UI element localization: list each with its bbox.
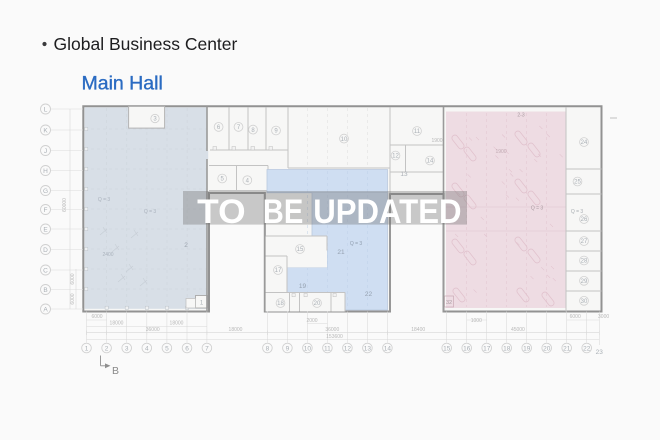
svg-text:B: B: [43, 287, 47, 294]
svg-text:D: D: [43, 247, 48, 254]
svg-text:Q = 3: Q = 3: [98, 197, 111, 203]
svg-text:28: 28: [581, 259, 588, 265]
svg-text:20: 20: [314, 301, 321, 307]
svg-text:18000: 18000: [229, 327, 243, 333]
svg-text:1000: 1000: [471, 318, 482, 324]
svg-text:C: C: [43, 267, 48, 274]
svg-text:22: 22: [365, 291, 373, 298]
svg-text:10: 10: [341, 137, 348, 143]
svg-text:11: 11: [324, 345, 331, 352]
svg-text:27: 27: [581, 239, 588, 245]
svg-text:K: K: [43, 127, 48, 134]
svg-text:15: 15: [443, 345, 451, 352]
svg-text:12: 12: [392, 154, 399, 160]
svg-text:24: 24: [581, 140, 588, 146]
svg-text:Global Business Center: Global Business Center: [54, 34, 238, 54]
svg-text:B: B: [112, 365, 119, 377]
svg-text:1900: 1900: [495, 149, 506, 155]
svg-text:2: 2: [105, 345, 109, 352]
svg-text:1900: 1900: [431, 138, 442, 144]
svg-text:BE: BE: [263, 193, 304, 231]
svg-text:18: 18: [277, 301, 284, 307]
svg-text:9: 9: [286, 345, 290, 352]
svg-text:36000: 36000: [325, 327, 339, 333]
svg-text:17: 17: [483, 345, 491, 352]
svg-text:1: 1: [85, 345, 89, 352]
svg-text:3000: 3000: [598, 314, 609, 320]
svg-text:30: 30: [581, 299, 588, 305]
svg-text:16: 16: [463, 345, 471, 352]
svg-text:23: 23: [596, 349, 604, 356]
svg-text:2000: 2000: [306, 318, 317, 324]
svg-text:Q = 3: Q = 3: [571, 209, 584, 215]
svg-text:13: 13: [364, 345, 372, 352]
svg-text:F: F: [44, 207, 48, 214]
svg-text:8: 8: [266, 345, 270, 352]
svg-text:A: A: [43, 306, 48, 313]
svg-text:Q = 3: Q = 3: [531, 206, 544, 212]
svg-text:UPDATED: UPDATED: [313, 193, 461, 231]
svg-text:10: 10: [304, 345, 312, 352]
svg-text:2: 2: [184, 242, 188, 249]
svg-text:H: H: [43, 168, 48, 175]
svg-text:18: 18: [503, 345, 511, 352]
svg-text:6000: 6000: [70, 293, 76, 304]
svg-text:19: 19: [299, 283, 307, 290]
svg-text:29: 29: [581, 279, 588, 285]
svg-text:14: 14: [427, 159, 434, 165]
svg-text:Main Hall: Main Hall: [82, 73, 163, 95]
svg-text:60000: 60000: [62, 198, 68, 212]
svg-text:12: 12: [344, 345, 352, 352]
svg-text:18400: 18400: [411, 327, 425, 333]
svg-text:7: 7: [205, 345, 209, 352]
svg-text:6000: 6000: [570, 314, 581, 320]
svg-text:18000: 18000: [170, 321, 184, 327]
svg-text:2-3: 2-3: [517, 113, 524, 119]
svg-text:6000: 6000: [91, 314, 102, 320]
svg-text:Q = 3: Q = 3: [350, 241, 363, 247]
svg-text:2400: 2400: [102, 252, 113, 258]
svg-text:11: 11: [414, 129, 421, 135]
svg-text:J: J: [44, 148, 47, 155]
svg-text:22: 22: [583, 345, 591, 352]
svg-text:15: 15: [297, 247, 304, 253]
svg-text:19: 19: [523, 345, 531, 352]
svg-text:21: 21: [337, 249, 345, 256]
svg-text:25: 25: [574, 180, 581, 186]
svg-text:E: E: [43, 226, 48, 233]
svg-text:5: 5: [165, 345, 169, 352]
svg-text:L: L: [44, 106, 48, 113]
svg-text:G: G: [43, 188, 48, 195]
svg-text:13: 13: [400, 171, 408, 178]
svg-text:TO: TO: [197, 193, 245, 231]
svg-text:18000: 18000: [110, 321, 124, 327]
svg-text:3: 3: [125, 345, 129, 352]
svg-text:14: 14: [384, 345, 392, 352]
svg-text:20: 20: [543, 345, 551, 352]
svg-text:36000: 36000: [146, 327, 160, 333]
svg-text:45000: 45000: [511, 327, 525, 333]
svg-text:32: 32: [446, 300, 452, 306]
svg-text:153600: 153600: [326, 334, 343, 340]
svg-text:26: 26: [581, 217, 588, 223]
svg-text:21: 21: [563, 345, 571, 352]
svg-text:17: 17: [275, 268, 282, 274]
svg-text:6: 6: [185, 345, 189, 352]
svg-text:Q = 3: Q = 3: [144, 209, 157, 215]
svg-text:4: 4: [145, 345, 149, 352]
svg-text:6000: 6000: [70, 273, 76, 284]
